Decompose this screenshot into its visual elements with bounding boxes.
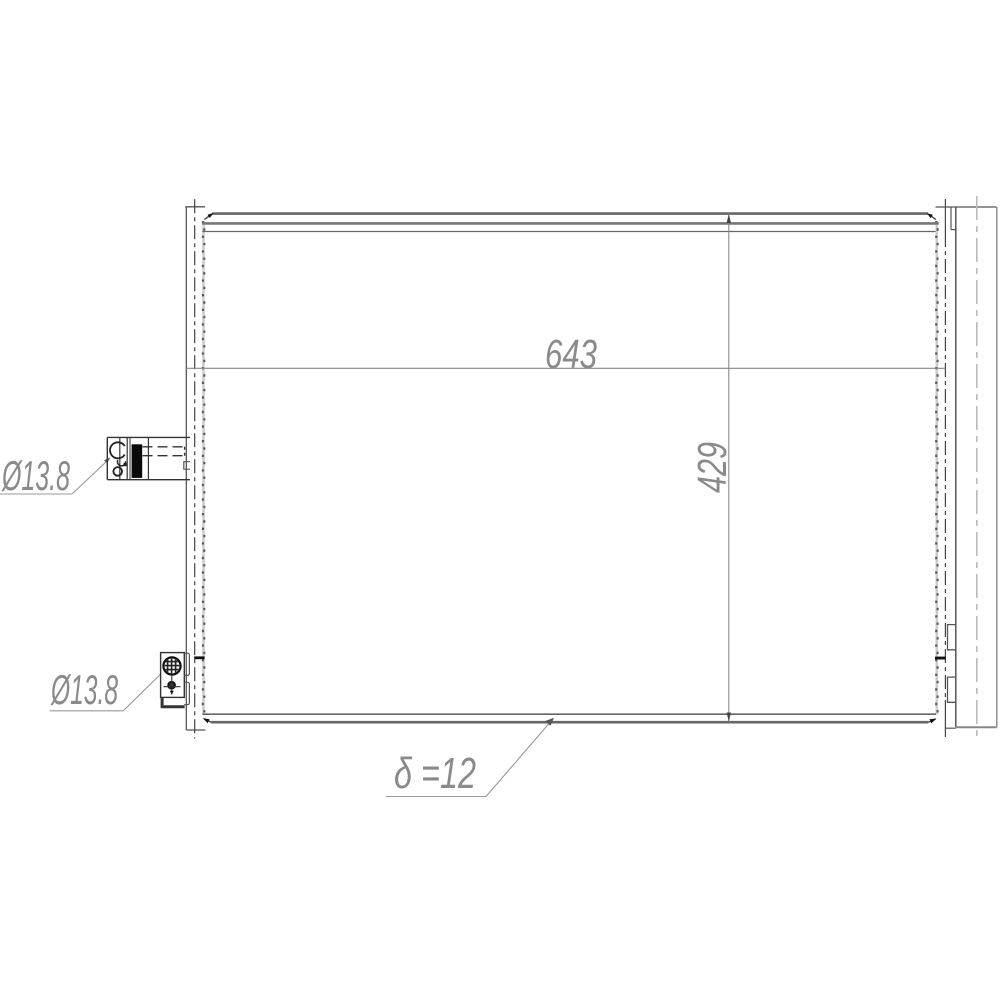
svg-text:δ =12: δ =12 xyxy=(394,749,476,798)
svg-text:643: 643 xyxy=(545,331,597,377)
svg-text:429: 429 xyxy=(689,442,735,493)
svg-text:Ø13.8: Ø13.8 xyxy=(1,452,71,499)
svg-text:Ø13.8: Ø13.8 xyxy=(50,666,119,713)
